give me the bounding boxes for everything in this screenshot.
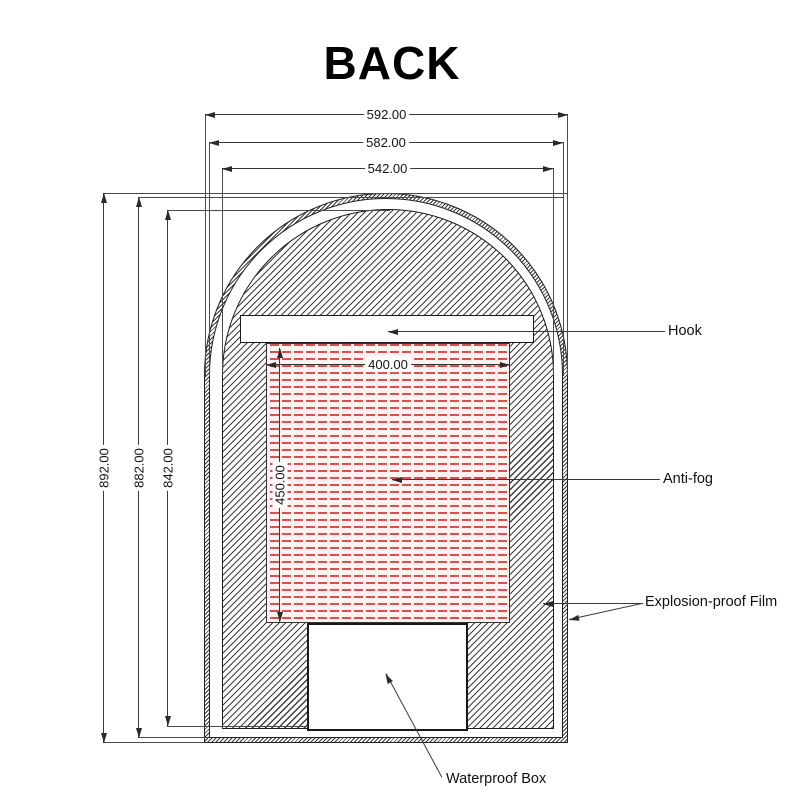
extension-line-top-mirror <box>138 197 564 198</box>
extension-line-bottom-panel <box>167 726 308 727</box>
leader-arrow-icon <box>388 329 398 335</box>
antifog-label: Anti-fog <box>663 471 713 487</box>
dim-mirror-width: 582.00 <box>209 142 563 143</box>
dim-outer-width: 592.00 <box>205 114 568 115</box>
dim-arrow-icon <box>101 193 107 203</box>
antifog-leader-line <box>392 479 660 480</box>
antifog-film-area <box>266 343 510 623</box>
hook-leader-line <box>388 331 665 332</box>
dim-arrow-icon <box>205 112 215 118</box>
extension-line-left-mirror <box>209 142 210 376</box>
dim-antifog-width: 400.00 <box>266 364 510 365</box>
dim-arrow-icon <box>266 362 276 368</box>
dim-arrow-icon <box>101 733 107 743</box>
extension-line-bottom-mirror <box>138 737 209 738</box>
dim-mirror-width-label: 582.00 <box>363 135 409 150</box>
dim-panel-height-label: 842.00 <box>161 445 176 491</box>
dim-outer-width-label: 592.00 <box>364 107 410 122</box>
dim-arrow-icon <box>165 210 171 220</box>
dim-arrow-icon <box>500 362 510 368</box>
dim-antifog-height: 450.00 <box>279 348 280 622</box>
waterproof-box-label: Waterproof Box <box>446 771 546 787</box>
drawing-title: BACK <box>0 36 784 90</box>
dim-arrow-icon <box>543 166 553 172</box>
explosion-film-label: Explosion-proof Film <box>645 594 777 610</box>
leader-arrow-icon <box>392 477 402 483</box>
dim-arrow-icon <box>553 140 563 146</box>
extension-line-right-panel <box>553 168 554 375</box>
dim-mirror-height: 882.00 <box>138 197 139 738</box>
extension-line-right-mirror <box>563 142 564 376</box>
dim-outer-height: 892.00 <box>103 193 104 743</box>
extension-line-left-outer <box>205 114 206 376</box>
leader-arrow-icon <box>568 614 579 622</box>
dim-mirror-height-label: 882.00 <box>132 445 147 491</box>
leader-arrow-icon <box>543 601 553 607</box>
dim-arrow-icon <box>558 112 568 118</box>
dim-outer-height-label: 892.00 <box>97 445 112 491</box>
dim-panel-width-label: 542.00 <box>365 161 411 176</box>
extension-line-bottom-outer <box>103 742 204 743</box>
extension-line-right-outer <box>567 114 568 376</box>
dim-arrow-icon <box>277 612 283 622</box>
extension-line-left-panel <box>222 168 223 375</box>
dim-arrow-icon <box>222 166 232 172</box>
explosion-film-leader-line-2 <box>569 603 642 620</box>
extension-line-top-panel <box>167 210 390 211</box>
dim-antifog-width-label: 400.00 <box>365 357 411 372</box>
extension-line-top-outer <box>103 193 568 194</box>
dim-panel-height: 842.00 <box>167 210 168 726</box>
dim-antifog-height-label: 450.00 <box>273 462 288 508</box>
explosion-film-leader-line-1 <box>543 603 643 604</box>
dim-arrow-icon <box>136 728 142 738</box>
hook-bar <box>240 315 534 343</box>
drawing-canvas: BACK 592.00 582.00 542.00 892.00 <box>0 0 800 800</box>
dim-arrow-icon <box>136 197 142 207</box>
dim-arrow-icon <box>277 348 283 358</box>
dim-arrow-icon <box>165 716 171 726</box>
dim-arrow-icon <box>209 140 219 146</box>
dim-panel-width: 542.00 <box>222 168 553 169</box>
hook-label: Hook <box>668 323 702 339</box>
